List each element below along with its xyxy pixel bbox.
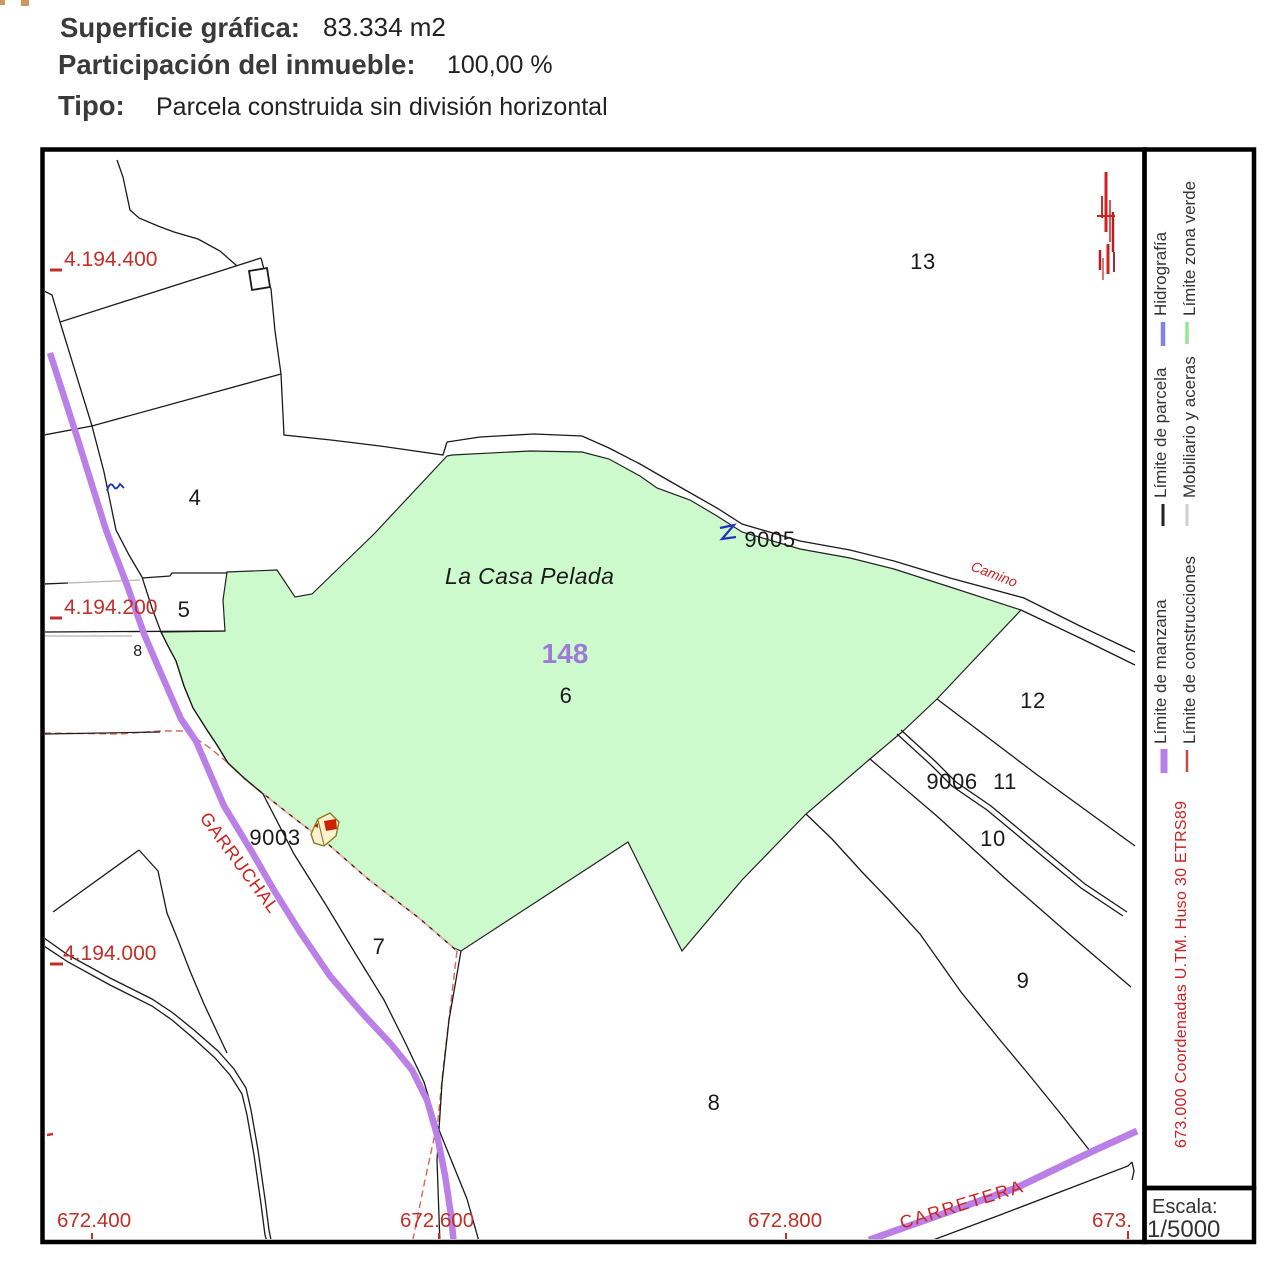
svg-text:4.194.200: 4.194.200	[64, 596, 157, 619]
svg-text:10: 10	[980, 826, 1006, 851]
svg-text:4.194.000: 4.194.000	[63, 942, 156, 965]
svg-text:148: 148	[542, 638, 589, 669]
svg-text:Mobiliario y aceras: Mobiliario y aceras	[1180, 356, 1199, 498]
svg-text:La Casa Pelada: La Casa Pelada	[445, 563, 614, 589]
svg-text:9006: 9006	[926, 769, 977, 794]
svg-text:8: 8	[133, 643, 143, 660]
svg-text:4.194.400: 4.194.400	[64, 248, 157, 271]
svg-text:672.800: 672.800	[748, 1209, 822, 1232]
svg-text:673.000 Coordenadas U.TM. Huso: 673.000 Coordenadas U.TM. Huso 30 ETRS89	[1173, 801, 1190, 1148]
svg-text:4: 4	[189, 485, 202, 510]
svg-text:672.600: 672.600	[400, 1209, 474, 1232]
svg-text:9003: 9003	[249, 825, 300, 850]
svg-text:11: 11	[993, 769, 1017, 794]
svg-text:CARRETERA: CARRETERA	[897, 1176, 1026, 1233]
svg-text:9005: 9005	[744, 527, 795, 552]
svg-text:Participación del inmueble:: Participación del inmueble:	[58, 49, 416, 80]
svg-text:Límite de parcela: Límite de parcela	[1151, 367, 1170, 498]
svg-text:672.400: 672.400	[57, 1209, 131, 1232]
svg-text:Parcela construida sin divisió: Parcela construida sin división horizont…	[156, 93, 608, 121]
svg-text:6: 6	[560, 683, 573, 708]
svg-text:13: 13	[910, 249, 936, 274]
svg-text:673.: 673.	[1092, 1209, 1132, 1232]
svg-text:Límite zona verde: Límite zona verde	[1180, 181, 1199, 316]
svg-text:83.334 m2: 83.334 m2	[323, 12, 446, 42]
svg-text:1/5000: 1/5000	[1147, 1216, 1220, 1243]
svg-text:Superficie gráfica:: Superficie gráfica:	[60, 12, 300, 43]
svg-text:Hidrografía: Hidrografía	[1151, 231, 1170, 316]
svg-text:Tipo:: Tipo:	[58, 90, 125, 121]
svg-text:100,00 %: 100,00 %	[447, 51, 553, 79]
svg-text:Límite de manzana: Límite de manzana	[1151, 599, 1170, 744]
svg-text:5: 5	[178, 597, 191, 622]
svg-text:12: 12	[1020, 688, 1046, 713]
svg-text:Límite de construcciones: Límite de construcciones	[1180, 556, 1199, 744]
svg-text:Escala:: Escala:	[1152, 1196, 1218, 1218]
svg-text:9: 9	[1017, 968, 1030, 993]
svg-text:7: 7	[373, 934, 386, 959]
svg-text:8: 8	[708, 1090, 721, 1115]
